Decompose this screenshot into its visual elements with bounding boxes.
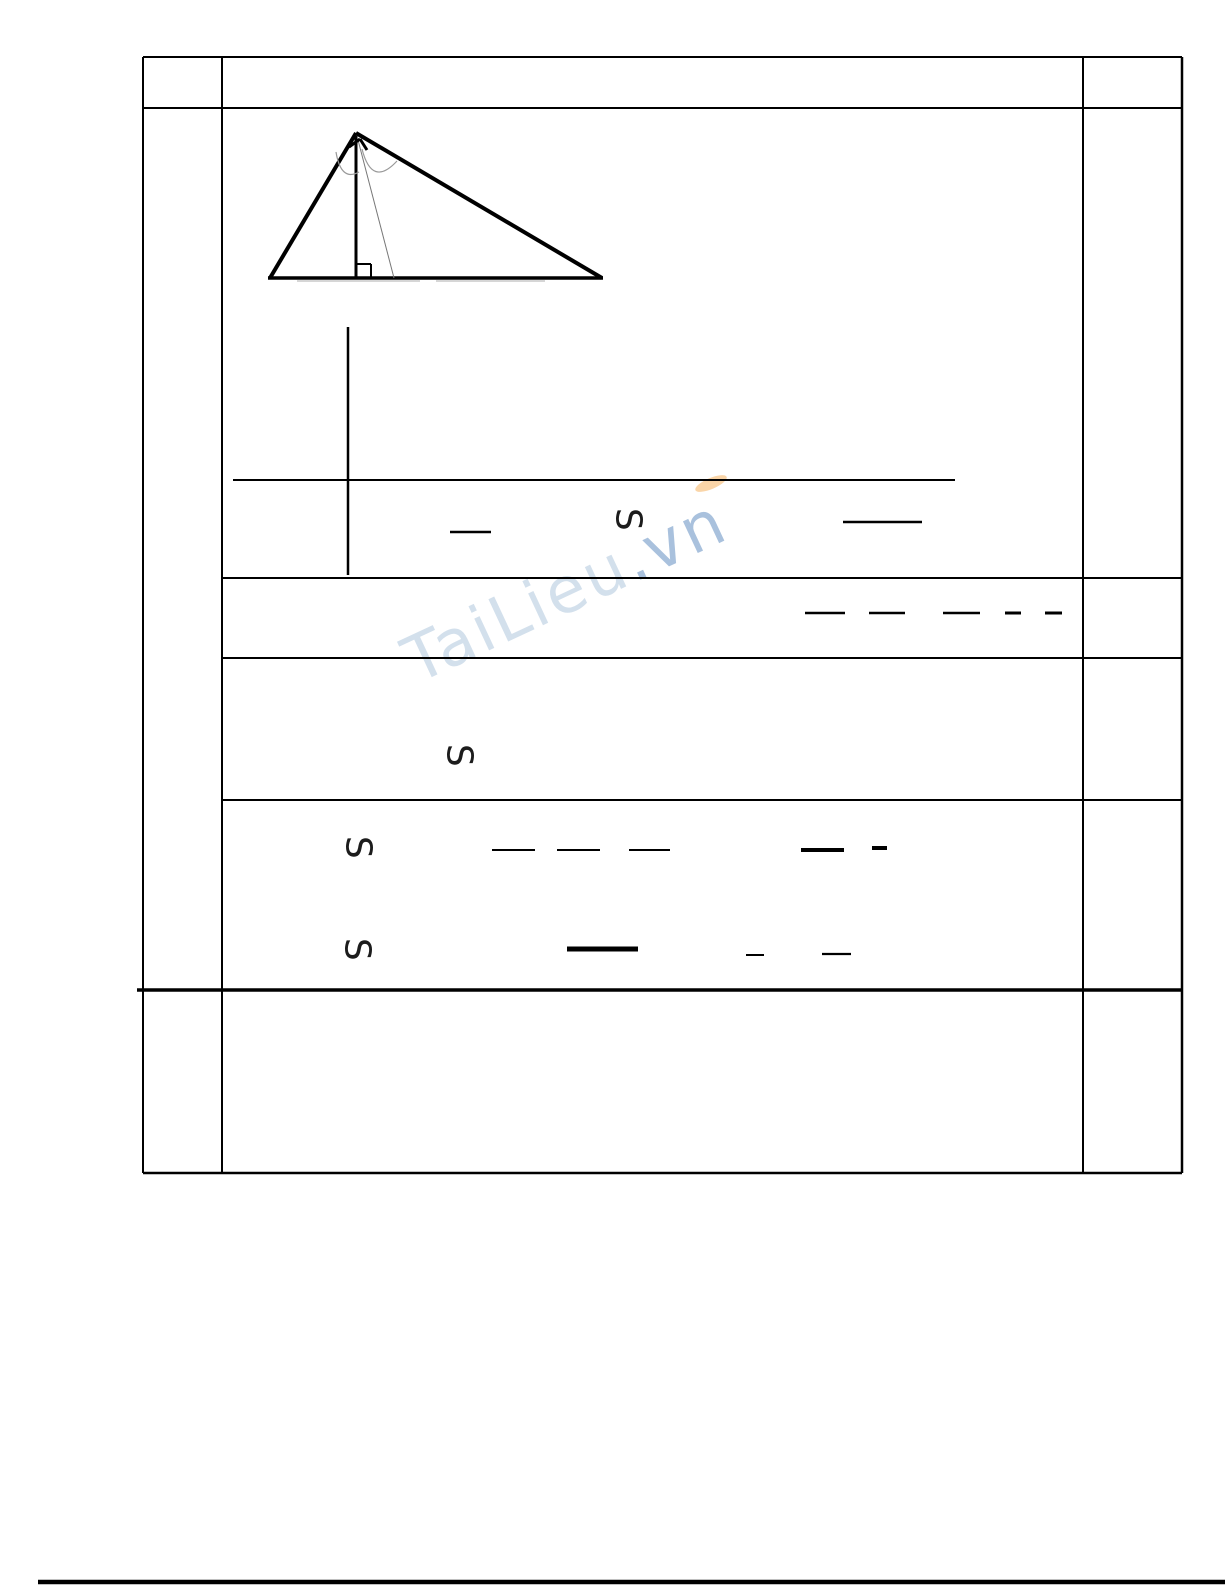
watermark-text: TaiLieu	[392, 530, 641, 698]
area-symbol: S	[337, 938, 378, 961]
watermark: TaiLieu.vn	[392, 485, 738, 699]
table-and-figure-overlay	[0, 0, 1225, 1585]
right-angle-apex-b	[360, 139, 367, 150]
cevian-line	[358, 140, 394, 278]
area-symbol: S	[608, 508, 649, 531]
document-page: TaiLieu.vn SSSS	[0, 0, 1225, 1585]
area-symbol: S	[338, 836, 379, 859]
area-symbol: S	[439, 744, 480, 767]
triangle-side-left	[270, 133, 356, 278]
angle-arc-right	[362, 149, 397, 172]
angle-arc-left	[336, 152, 359, 175]
right-angle-apex-a	[349, 139, 360, 147]
triangle-side-right	[356, 133, 602, 278]
